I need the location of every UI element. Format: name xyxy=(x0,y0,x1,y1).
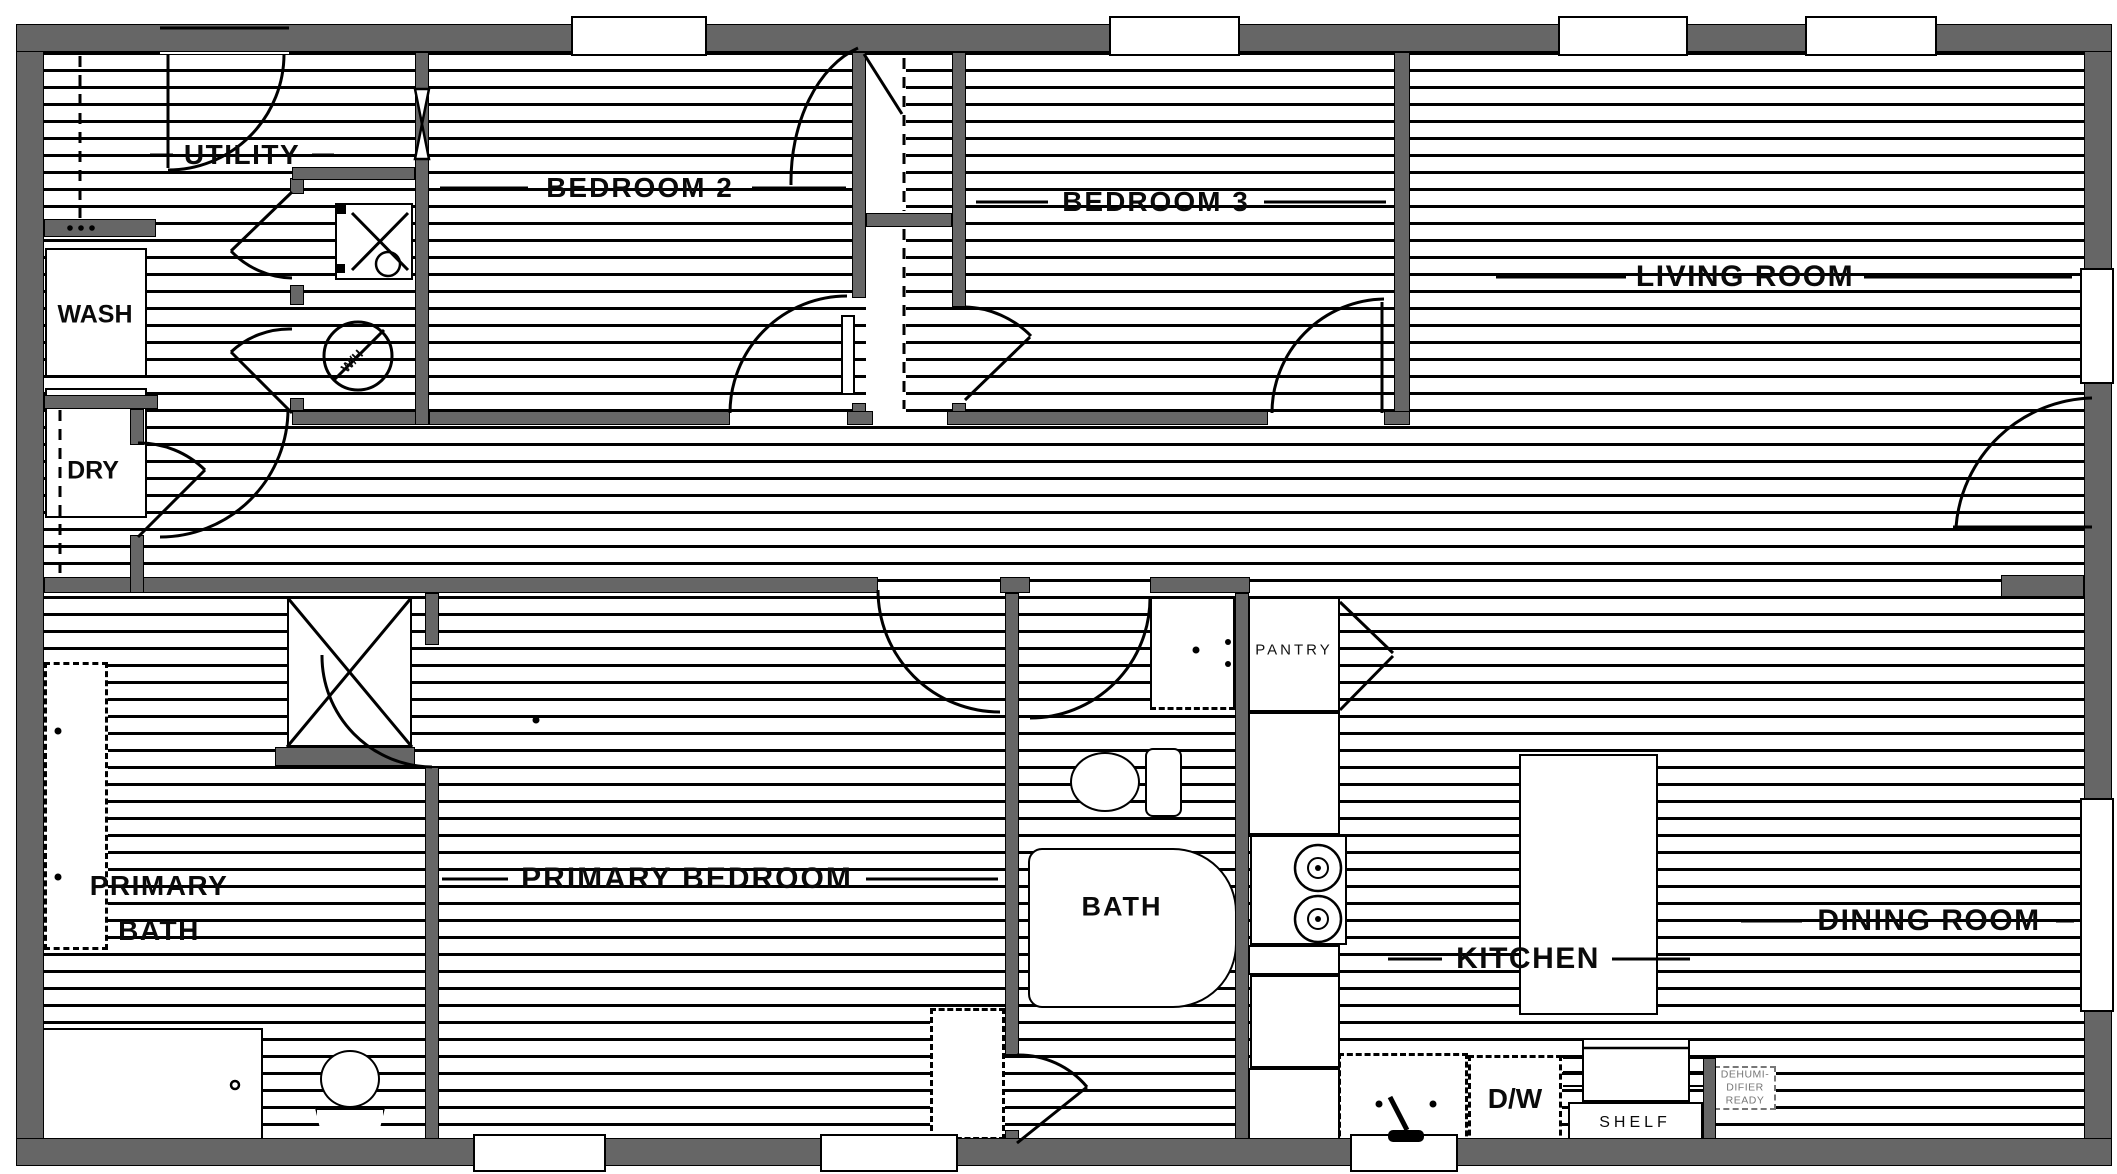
dryer-label: DRY xyxy=(67,457,119,486)
primary-bath-line1: PRIMARY xyxy=(90,863,229,908)
room-label-bedroom2: BEDROOM 2 xyxy=(546,172,734,204)
bath-sink-faucet xyxy=(1193,647,1200,654)
shelf-dot-2 xyxy=(78,225,84,231)
room-label-pantry: PANTRY xyxy=(1255,642,1332,659)
utility-closet-door-leaf-lower xyxy=(231,352,292,413)
bedroom3-entry-door-arc xyxy=(1272,299,1384,413)
tub-drain xyxy=(231,1081,239,1089)
bath-lower-door-arc xyxy=(1017,1055,1087,1087)
bedroom2-closet-door-leaf xyxy=(864,54,902,114)
shower-x xyxy=(287,597,412,747)
bedroom2-closet-door-arc xyxy=(791,48,858,185)
room-label-primary-bath: PRIMARYBATH xyxy=(90,863,229,953)
hall-closet-door-leaf xyxy=(138,470,205,537)
dehum-line2: DIFIER xyxy=(1721,1082,1769,1095)
furnace-mark-1 xyxy=(336,204,346,214)
tub-knob xyxy=(533,717,540,724)
bath-hall-door-arc xyxy=(1030,598,1150,718)
pantry-door-lines xyxy=(1340,602,1393,710)
room-label-dining: DINING ROOM xyxy=(1817,904,2040,938)
primary-bath-line2: BATH xyxy=(90,908,229,953)
bedroom2-entry-door-arc xyxy=(730,296,847,413)
shelf-dot-1 xyxy=(67,225,73,231)
furnace-pipe-circle xyxy=(376,252,400,276)
dehumidifier-label: DEHUMI-DIFIERREADY xyxy=(1721,1069,1769,1108)
burner-dot-2 xyxy=(1315,916,1321,922)
cabinet-rungs-east xyxy=(1690,1058,1703,1086)
utility-closet-door-leaf-upper xyxy=(231,192,292,251)
bowtie-joint-icon xyxy=(415,89,429,159)
hall-closet-door-arc xyxy=(138,443,205,470)
dishwasher-label: D/W xyxy=(1488,1083,1542,1115)
dehum-line3: READY xyxy=(1721,1095,1769,1108)
cabinet-rungs-west xyxy=(1563,1058,1582,1086)
closet-rods xyxy=(60,56,904,575)
linework-layer xyxy=(0,0,2117,1174)
room-label-kitchen: KITCHEN xyxy=(1456,942,1600,976)
room-label-bath: BATH xyxy=(1082,892,1163,923)
kitchen-faucet xyxy=(1388,1130,1424,1142)
kitchen-sink-dot-2 xyxy=(1430,1101,1437,1108)
room-label-primary-bedroom: PRIMARY BEDROOM xyxy=(521,862,853,896)
bath-sink-handle-2 xyxy=(1225,661,1231,667)
sink-sprayer xyxy=(1390,1097,1407,1130)
bath-sink-handle-1 xyxy=(1225,639,1231,645)
kitchen-sink-dot-1 xyxy=(1376,1101,1383,1108)
shelf-label: SHELF xyxy=(1599,1114,1671,1132)
utility-closet-door-arc-lower xyxy=(231,329,292,352)
bedroom3-closet-door-leaf xyxy=(965,337,1030,400)
shelf-dot-3 xyxy=(89,225,95,231)
bath-lower-door-leaf xyxy=(1017,1087,1087,1143)
vanity-faucet-2 xyxy=(55,874,62,881)
small-details xyxy=(55,204,1437,1142)
bedroom3-closet-door-arc xyxy=(965,307,1031,336)
burner-dot-1 xyxy=(1315,865,1321,871)
vanity-faucet-1 xyxy=(55,728,62,735)
utility-hall-door-arc xyxy=(160,409,288,537)
room-label-utility: UTILITY xyxy=(184,139,300,171)
washer-label: WASH xyxy=(58,301,133,330)
dehum-line1: DEHUMI- xyxy=(1721,1069,1769,1082)
utility-closet-door-arc-upper xyxy=(231,251,292,278)
living-exterior-door-arc xyxy=(1956,398,2092,527)
primary-bedroom-door-arc xyxy=(878,590,1000,712)
room-label-living: LIVING ROOM xyxy=(1636,260,1854,294)
floor-plan: UTILITY BEDROOM 2 BEDROOM 3 LIVING ROOM … xyxy=(0,0,2117,1174)
primary-bath-door-arc xyxy=(322,655,432,767)
furnace-mark-2 xyxy=(336,264,345,273)
room-label-bedroom3: BEDROOM 3 xyxy=(1062,186,1250,218)
